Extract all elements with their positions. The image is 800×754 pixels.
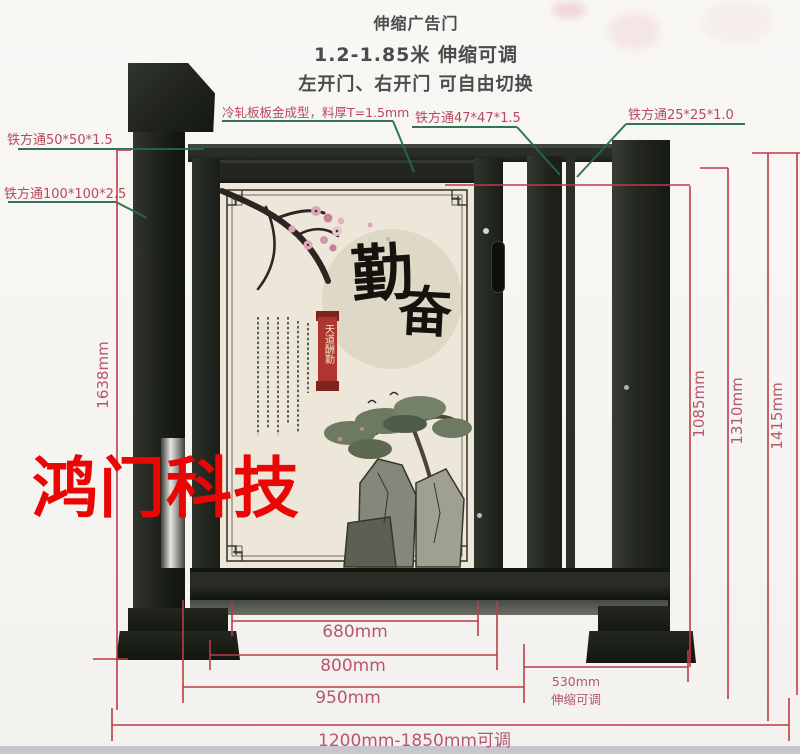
lock-cylinder xyxy=(483,228,489,234)
header-title: 伸缩广告门 xyxy=(373,10,458,34)
right-post xyxy=(612,140,670,618)
dim-width-frame: 950mm xyxy=(283,688,413,708)
door-right-stile xyxy=(474,158,503,600)
photo-smudge xyxy=(702,0,772,44)
label-tube-50: 铁方通50*50*1.5 xyxy=(7,129,113,148)
bottom-skirt xyxy=(190,600,668,615)
door-top-rail xyxy=(192,160,503,184)
ink-rocks xyxy=(344,459,464,567)
dim-telescopic-note: 伸缩可调 xyxy=(531,689,621,708)
dim-width-door: 800mm xyxy=(288,656,418,676)
watermark: 鸿门科技 xyxy=(32,456,300,522)
dim-total-height-left: 1638mm xyxy=(94,339,112,411)
dim-height-mid-right: 1310mm xyxy=(728,375,746,447)
left-base xyxy=(116,631,240,660)
door-handle xyxy=(491,241,505,293)
motor-box xyxy=(128,63,215,132)
right-base xyxy=(586,631,696,663)
label-tube-25: 铁方通25*25*1.0 xyxy=(628,104,734,123)
header-subtitle-range: 1.2-1.85米 伸缩可调 xyxy=(314,40,518,67)
label-cold-rolled: 冷轧板板金成型，料厚T=1.5mm xyxy=(222,102,409,121)
dim-height-outer-right: 1415mm xyxy=(768,380,786,452)
seal-text: 天道酬勤 xyxy=(323,324,335,365)
post-screw xyxy=(624,385,629,390)
photo-smudge xyxy=(552,2,586,18)
photo-smudge xyxy=(608,12,660,50)
bottom-rail xyxy=(190,568,670,600)
dim-width-panel: 680mm xyxy=(290,622,420,642)
telescopic-bar-25 xyxy=(566,156,575,570)
calligraphy-char-fen: 奋 xyxy=(396,280,453,346)
telescopic-bar-47 xyxy=(527,156,562,570)
advertising-gate-diagram: 伸缩广告门 1.2-1.85米 伸缩可调 左开门、右开门 可自由切换 xyxy=(0,0,800,754)
label-tube-47: 铁方通47*47*1.5 xyxy=(415,107,521,126)
seal-banner: 天道酬勤 xyxy=(316,311,339,391)
poem-columns xyxy=(258,317,308,435)
dim-overall-width-range: 1200mm-1850mm可调 xyxy=(302,726,527,751)
left-base-step xyxy=(128,608,228,634)
dim-height-inner-right: 1085mm xyxy=(690,368,708,440)
right-base-step xyxy=(598,606,670,634)
door-left-stile xyxy=(192,158,220,600)
hinge-dot xyxy=(477,513,482,518)
label-tube-100: 铁方通100*100*2.5 xyxy=(4,183,126,202)
header-subtitle-switch: 左开门、右开门 可自由切换 xyxy=(298,70,533,96)
dim-telescopic-width: 530mm xyxy=(531,674,621,689)
